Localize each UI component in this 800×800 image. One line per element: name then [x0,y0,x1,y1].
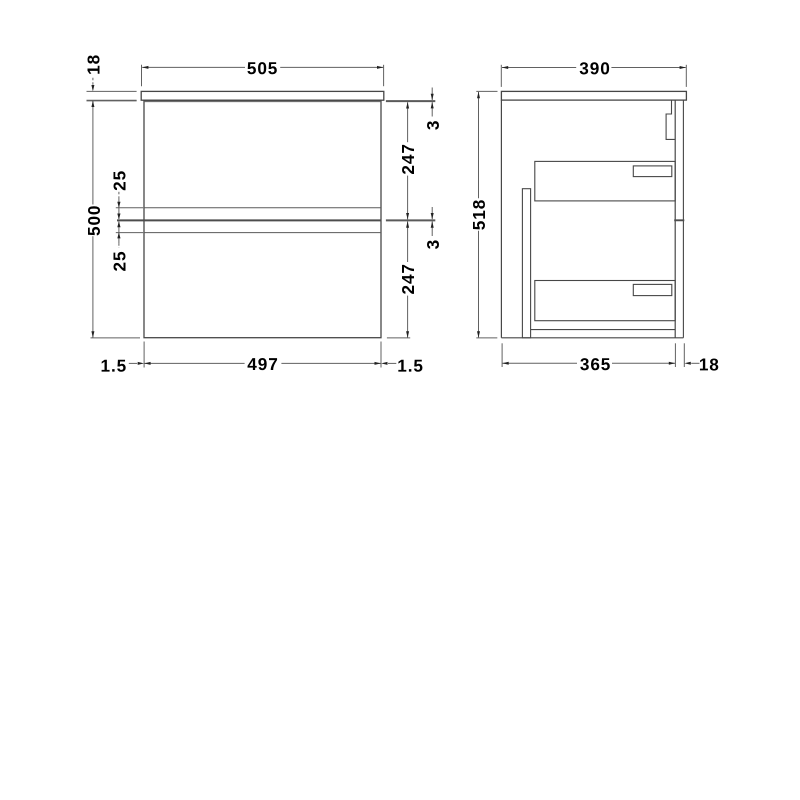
svg-text:500: 500 [84,205,104,236]
svg-text:497: 497 [247,354,278,374]
svg-text:390: 390 [579,58,610,78]
svg-text:518: 518 [469,199,489,230]
svg-text:25: 25 [109,170,129,191]
svg-text:1.5: 1.5 [100,356,127,376]
svg-text:505: 505 [247,58,278,78]
svg-text:25: 25 [109,251,129,272]
svg-text:3: 3 [423,239,443,249]
svg-text:18: 18 [699,354,720,374]
svg-text:18: 18 [84,54,104,75]
svg-text:247: 247 [398,143,418,174]
svg-text:247: 247 [398,263,418,294]
svg-text:365: 365 [580,354,611,374]
svg-text:3: 3 [423,120,443,130]
svg-text:1.5: 1.5 [397,356,424,376]
